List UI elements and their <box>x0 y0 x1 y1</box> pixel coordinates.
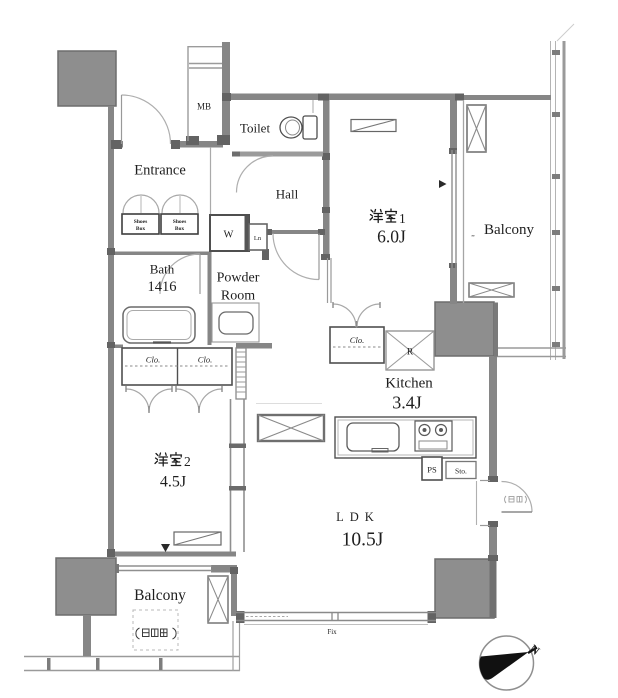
svg-text:Entrance: Entrance <box>134 163 186 179</box>
svg-text:Clo.: Clo. <box>198 355 212 365</box>
svg-text:Hall: Hall <box>276 187 299 202</box>
svg-text:Balcony: Balcony <box>134 587 186 604</box>
svg-text:Balcony: Balcony <box>484 222 534 238</box>
svg-text:Powder: Powder <box>217 271 260 286</box>
svg-text:10.5J: 10.5J <box>342 530 384 551</box>
svg-text:2: 2 <box>184 454 191 469</box>
svg-text:Box: Box <box>175 226 184 232</box>
svg-text:1416: 1416 <box>148 279 177 295</box>
svg-text:Ln: Ln <box>254 235 262 242</box>
svg-text:Sto.: Sto. <box>455 467 467 476</box>
svg-text:3.4J: 3.4J <box>392 393 422 413</box>
svg-text:4.5J: 4.5J <box>160 474 186 491</box>
svg-text:Bath: Bath <box>150 262 175 277</box>
svg-text:Shoes: Shoes <box>134 219 147 225</box>
svg-text:PS: PS <box>427 465 437 475</box>
svg-text:Kitchen: Kitchen <box>385 376 433 392</box>
svg-text:Clo.: Clo. <box>146 355 160 365</box>
svg-text:R: R <box>407 348 414 358</box>
svg-text:Toilet: Toilet <box>240 121 271 136</box>
svg-text:MB: MB <box>197 102 211 112</box>
svg-text:Shoes: Shoes <box>173 219 186 225</box>
svg-text:Room: Room <box>221 289 255 304</box>
svg-text:LDK: LDK <box>336 510 380 524</box>
svg-text:1: 1 <box>399 211 406 226</box>
svg-text:W: W <box>224 230 234 241</box>
svg-text:Box: Box <box>136 226 145 232</box>
svg-text:6.0J: 6.0J <box>377 227 406 247</box>
svg-text:Fix: Fix <box>327 628 337 636</box>
svg-text:,,: ,, <box>471 230 475 238</box>
svg-text:N: N <box>527 641 543 658</box>
svg-text:Clo.: Clo. <box>350 335 364 345</box>
